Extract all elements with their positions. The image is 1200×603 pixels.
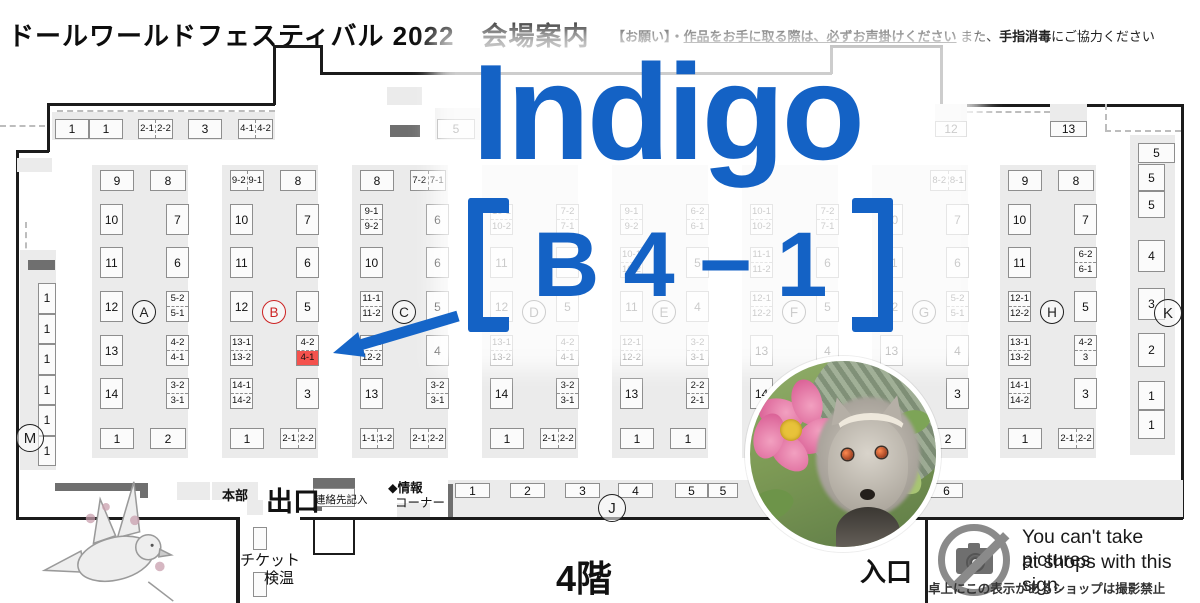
booth: 2-12-2 bbox=[410, 428, 446, 449]
booth: 4-23 bbox=[1074, 335, 1097, 366]
booth-label: 4-2 bbox=[171, 338, 185, 348]
booth: 12-112-2 bbox=[360, 335, 383, 366]
booth: 4 bbox=[618, 483, 653, 498]
booth: 7 bbox=[166, 204, 189, 235]
booth-label: 2 bbox=[165, 433, 172, 445]
booth-label: 7 bbox=[1082, 214, 1089, 226]
booth-label: 5 bbox=[720, 485, 727, 497]
temperature-check-label: 検温 bbox=[264, 567, 294, 588]
booth: 14 bbox=[490, 378, 513, 409]
booth-label: 3 bbox=[579, 485, 586, 497]
booth: 3-23-1 bbox=[556, 378, 579, 409]
wall bbox=[300, 517, 1183, 520]
booth-label: 3-2 bbox=[431, 381, 445, 391]
booth: 12 bbox=[100, 291, 123, 322]
booth: 1-11-2 bbox=[360, 428, 394, 449]
booth: 9-19-2 bbox=[360, 204, 383, 235]
wall bbox=[47, 103, 275, 106]
booth-label: 6 bbox=[943, 485, 950, 497]
wolf-eye bbox=[876, 447, 887, 458]
booth-label: 2-1 bbox=[691, 396, 705, 406]
booth: 9 bbox=[1008, 170, 1042, 191]
partition bbox=[448, 484, 453, 517]
partition bbox=[322, 478, 355, 488]
dashed-line bbox=[1105, 130, 1181, 132]
booth-label: 9 bbox=[114, 175, 121, 187]
booth-label: 3 bbox=[1083, 353, 1088, 363]
block-letter-C: C bbox=[392, 300, 416, 324]
booth-label: 5 bbox=[1148, 172, 1155, 184]
booth-label: 10 bbox=[365, 257, 378, 269]
wall bbox=[16, 150, 19, 519]
booth-label: 2-1 bbox=[412, 434, 426, 444]
booth-label: 5 bbox=[304, 301, 311, 313]
notice-segment: また、 bbox=[957, 29, 1000, 44]
booth-label: 13-1 bbox=[1010, 338, 1029, 348]
booth-label: 1-1 bbox=[362, 434, 376, 444]
booth: 6-26-1 bbox=[1074, 247, 1097, 278]
booth: 2-12-2 bbox=[138, 119, 173, 139]
booth: 13 bbox=[360, 378, 383, 409]
booth-label: 11 bbox=[105, 257, 117, 269]
booth-label: 12-1 bbox=[1010, 294, 1029, 304]
block-letter-label: J bbox=[608, 500, 616, 517]
wall bbox=[273, 45, 322, 48]
booth-label: 7 bbox=[304, 214, 311, 226]
booth: 1 bbox=[455, 483, 490, 498]
booth-label: 1 bbox=[44, 353, 51, 365]
booth: 5 bbox=[675, 483, 708, 498]
booth-label: 1 bbox=[244, 433, 251, 445]
wolf-eye bbox=[842, 449, 853, 460]
booth-label: 11-2 bbox=[362, 309, 380, 319]
booth: 13 bbox=[100, 335, 123, 366]
booth-label: 13 bbox=[105, 345, 118, 357]
booth: 4 bbox=[1138, 240, 1165, 272]
booth-label: 2-2 bbox=[1078, 434, 1092, 444]
doll-photo bbox=[745, 356, 941, 552]
wolf-body bbox=[836, 507, 900, 552]
booth-label: 4 bbox=[1148, 250, 1155, 262]
dashed-line bbox=[967, 111, 1050, 113]
booth-label: 10 bbox=[105, 214, 118, 226]
block-letter-label: B bbox=[269, 305, 278, 320]
booth-label: 9 bbox=[1022, 175, 1029, 187]
no-photo-caption: 卓上にこの表示があるショップは撮影禁止 bbox=[928, 578, 1165, 597]
booth-label: 5 bbox=[434, 301, 441, 313]
booth-label: 1 bbox=[69, 123, 76, 135]
booth: 3 bbox=[1074, 378, 1097, 409]
booth: 13-113-2 bbox=[230, 335, 253, 366]
booth: 11 bbox=[1008, 247, 1031, 278]
booth: 3 bbox=[188, 119, 222, 139]
booth-label: 5 bbox=[1148, 199, 1155, 211]
leaf bbox=[745, 482, 798, 530]
booth-label: 4 bbox=[632, 485, 639, 497]
booth-label: 1 bbox=[103, 123, 110, 135]
booth-label: 1 bbox=[44, 445, 51, 457]
booth-label: 9-1 bbox=[248, 176, 262, 186]
booth: 5 bbox=[1074, 291, 1097, 322]
booth-label: 3-1 bbox=[171, 396, 185, 406]
wall-booth-strip bbox=[1050, 104, 1087, 121]
floor-label: 4階 bbox=[556, 550, 612, 602]
booth-label: 10 bbox=[1013, 214, 1026, 226]
booth: 13 bbox=[620, 378, 643, 409]
booth: 1 bbox=[38, 314, 56, 345]
booth: 1 bbox=[100, 428, 134, 449]
booth-label: 3-2 bbox=[171, 381, 185, 391]
side-booth bbox=[17, 158, 52, 172]
booth: 8 bbox=[280, 170, 316, 191]
booth-label: 14-2 bbox=[1010, 396, 1029, 406]
booth-label: 13-2 bbox=[492, 353, 511, 363]
booth: 5 bbox=[1138, 143, 1175, 163]
wall bbox=[313, 517, 315, 555]
block-letter-label: C bbox=[399, 305, 409, 320]
booth-label: 2-2 bbox=[300, 434, 314, 444]
hq-label: 本部 bbox=[222, 485, 248, 504]
booth: 3 bbox=[296, 378, 319, 409]
booth: 6 bbox=[296, 247, 319, 278]
booth: 3 bbox=[946, 378, 969, 409]
booth-label: 1 bbox=[634, 433, 641, 445]
booth: 5 bbox=[708, 483, 738, 498]
booth: 8 bbox=[150, 170, 186, 191]
info-corner-label2: コーナー bbox=[395, 492, 445, 511]
booth: 8 bbox=[1058, 170, 1094, 191]
wall bbox=[16, 150, 49, 153]
booth-label: 3-1 bbox=[691, 353, 705, 363]
block-letter-K: K bbox=[1154, 299, 1182, 327]
booth-label: 2-2 bbox=[157, 124, 171, 134]
booth-label: 6-1 bbox=[1079, 265, 1093, 275]
booth: 13 bbox=[1050, 121, 1087, 137]
booth-label: 8 bbox=[295, 175, 302, 187]
booth: 2 bbox=[510, 483, 545, 498]
booth-label: 1 bbox=[114, 433, 121, 445]
booth-label: 12 bbox=[105, 301, 118, 313]
block-letter-H: H bbox=[1040, 300, 1064, 324]
shop-name-overlay: Indigo bbox=[472, 44, 862, 180]
booth-label: 2-1 bbox=[1060, 434, 1074, 444]
booth-label: 14-1 bbox=[232, 381, 251, 391]
booth: 8 bbox=[360, 170, 394, 191]
booth-label: 4-2 bbox=[257, 124, 271, 134]
booth-label: 2 bbox=[945, 433, 952, 445]
booth-label: 13 bbox=[1062, 123, 1075, 135]
booth-label: 4-1 bbox=[240, 124, 254, 134]
booth-label: 10 bbox=[235, 214, 248, 226]
dashed-line bbox=[0, 125, 45, 127]
booth-label: 11-1 bbox=[362, 294, 380, 304]
booth: 10 bbox=[230, 204, 253, 235]
booth: 14-114-2 bbox=[1008, 378, 1031, 409]
booth-label: 3 bbox=[304, 388, 311, 400]
booth-label: 7-1 bbox=[430, 176, 444, 186]
booth-label: 5 bbox=[1082, 301, 1089, 313]
booth: 11-111-2 bbox=[360, 291, 383, 322]
booth-label: 9-2 bbox=[365, 222, 379, 232]
booth-label: 1 bbox=[504, 433, 511, 445]
wall bbox=[236, 517, 240, 603]
right-bracket-glyph bbox=[852, 198, 893, 332]
booth-label: 3 bbox=[1082, 388, 1089, 400]
booth-label: 8 bbox=[165, 175, 172, 187]
booth-label: 14 bbox=[105, 388, 118, 400]
contact-entry-label: 連絡先記入 bbox=[315, 492, 368, 507]
booth-label: 13-2 bbox=[232, 353, 251, 363]
booth-label: 12-2 bbox=[622, 353, 641, 363]
booth: 1 bbox=[38, 375, 56, 406]
side-booth bbox=[387, 87, 422, 105]
booth: 4-14-2 bbox=[238, 119, 273, 139]
booth-label: 7-2 bbox=[412, 176, 426, 186]
booth-label: 3-2 bbox=[561, 381, 575, 391]
ticket-desk bbox=[253, 527, 267, 550]
booth: 6 bbox=[426, 247, 449, 278]
booth: 14 bbox=[100, 378, 123, 409]
booth: 4-24-1 bbox=[166, 335, 189, 366]
booth-label: 1 bbox=[1148, 390, 1155, 402]
booth: 2 bbox=[150, 428, 186, 449]
wall bbox=[313, 553, 355, 555]
booth-label: 3-1 bbox=[431, 396, 445, 406]
booth: 11 bbox=[100, 247, 123, 278]
booth-label: 14-1 bbox=[1010, 381, 1029, 391]
dove-illustration bbox=[40, 478, 195, 603]
booth: 1 bbox=[89, 119, 123, 139]
booth: 5 bbox=[1138, 164, 1165, 191]
overlay-char: 1 bbox=[776, 219, 827, 311]
booth-label: 13 bbox=[365, 388, 378, 400]
booth: 2-12-2 bbox=[540, 428, 576, 449]
wall bbox=[273, 45, 276, 105]
booth-label: 2 bbox=[1148, 344, 1155, 356]
booth: 5 bbox=[426, 291, 449, 322]
booth: 1 bbox=[490, 428, 524, 449]
booth-label: 2-2 bbox=[430, 434, 444, 444]
booth: 3 bbox=[565, 483, 600, 498]
booth-label: 2-1 bbox=[140, 124, 154, 134]
booth-label: 4 bbox=[434, 345, 441, 357]
booth: 5-25-1 bbox=[166, 291, 189, 322]
booth-label: 2-1 bbox=[542, 434, 556, 444]
venue-map: ドールワールドフェスティバル 2022 会場案内 【お願い】・作品をお手に取る際… bbox=[0, 0, 1200, 603]
booth: 1 bbox=[1008, 428, 1042, 449]
booth-label: 14-2 bbox=[232, 396, 251, 406]
booth: 5 bbox=[296, 291, 319, 322]
block-letter-M: M bbox=[16, 424, 44, 452]
overlay-char: 4 bbox=[623, 219, 674, 311]
booth: 5 bbox=[1138, 191, 1165, 218]
booth-label: 6 bbox=[304, 257, 311, 269]
entrance-label: 入口 bbox=[860, 552, 912, 589]
booth-label: 1 bbox=[1022, 433, 1029, 445]
booth: 12 bbox=[230, 291, 253, 322]
booth: 7-27-1 bbox=[410, 170, 446, 191]
block-letter-label: H bbox=[1047, 305, 1057, 320]
overlay-char: B bbox=[533, 219, 599, 311]
booth: 3-23-1 bbox=[166, 378, 189, 409]
booth-label: 1 bbox=[685, 433, 692, 445]
booth-label: 2-2 bbox=[560, 434, 574, 444]
booth: 12-112-2 bbox=[1008, 291, 1031, 322]
booth-label: 7 bbox=[174, 214, 181, 226]
booth: 4 bbox=[426, 335, 449, 366]
booth: 4-24-1 bbox=[296, 335, 319, 366]
booth-label: 5 bbox=[688, 485, 695, 497]
booth-label: 4-1 bbox=[301, 353, 315, 363]
booth-label: 6 bbox=[174, 257, 181, 269]
booth: 6 bbox=[166, 247, 189, 278]
booth-label: 4-1 bbox=[561, 353, 575, 363]
block-letter-B: B bbox=[262, 300, 286, 324]
booth-label: 13-2 bbox=[1010, 353, 1029, 363]
booth-label: 2 bbox=[524, 485, 531, 497]
booth-label: 4-2 bbox=[301, 338, 315, 348]
block-letter-A: A bbox=[132, 300, 156, 324]
notice-segment: 手指消毒 bbox=[999, 29, 1051, 44]
hq-booth bbox=[247, 500, 263, 515]
booth-label: 8 bbox=[374, 175, 381, 187]
booth: 7 bbox=[1074, 204, 1097, 235]
booth: 3-23-1 bbox=[426, 378, 449, 409]
overlay-char: − bbox=[699, 219, 753, 311]
booth-label: 1 bbox=[469, 485, 476, 497]
booth-label: 1 bbox=[44, 323, 51, 335]
booth-label: 6-2 bbox=[1079, 250, 1093, 260]
booth-label: 3-1 bbox=[561, 396, 575, 406]
booth-label: 1-2 bbox=[378, 434, 392, 444]
block-letter-J: J bbox=[598, 494, 626, 522]
booth: 1 bbox=[620, 428, 654, 449]
booth-label: 12 bbox=[235, 301, 248, 313]
booth: 10 bbox=[1008, 204, 1031, 235]
booth: 9-29-1 bbox=[230, 170, 264, 191]
wall bbox=[353, 517, 355, 555]
booth: 10 bbox=[360, 247, 383, 278]
wall bbox=[320, 45, 323, 74]
booth: 2 bbox=[1138, 333, 1165, 367]
booth-label: 11 bbox=[235, 257, 247, 269]
booth: 1 bbox=[1138, 381, 1165, 410]
booth: 10 bbox=[100, 204, 123, 235]
notice-segment: にご協力ください bbox=[1051, 29, 1155, 44]
booth-label: 13 bbox=[625, 388, 638, 400]
booth: 1 bbox=[55, 119, 89, 139]
booth: 11 bbox=[230, 247, 253, 278]
booth: 1 bbox=[38, 344, 56, 375]
booth-label: 2-1 bbox=[282, 434, 296, 444]
booth-label: 1 bbox=[44, 292, 51, 304]
booth-label: 3 bbox=[202, 123, 209, 135]
booth-label: 9-2 bbox=[232, 176, 246, 186]
exit-label: 出口 bbox=[266, 480, 320, 519]
booth-label: 8 bbox=[1073, 175, 1080, 187]
booth-label: 1 bbox=[44, 384, 51, 396]
booth-label: 1 bbox=[1148, 419, 1155, 431]
booth: 13-113-2 bbox=[1008, 335, 1031, 366]
booth: 2-12-2 bbox=[1058, 428, 1094, 449]
booth-label: 3 bbox=[954, 388, 961, 400]
booth-label: 11 bbox=[1013, 257, 1025, 269]
booth-label: 9-1 bbox=[365, 207, 379, 217]
booth-label: 12-1 bbox=[362, 338, 381, 348]
booth-label: 14 bbox=[495, 388, 508, 400]
block-letter-label: A bbox=[139, 305, 148, 320]
booth: 9 bbox=[100, 170, 134, 191]
partition bbox=[28, 260, 55, 270]
booth: 7 bbox=[296, 204, 319, 235]
booth: 6 bbox=[426, 204, 449, 235]
booth-label: 12-2 bbox=[1010, 309, 1029, 319]
booth: 2-22-1 bbox=[686, 378, 709, 409]
booth: 2-12-2 bbox=[280, 428, 316, 449]
booth-label: 5-2 bbox=[171, 294, 185, 304]
booth-label: 5-1 bbox=[171, 309, 185, 319]
booth: 1 bbox=[38, 283, 56, 314]
booth: 1 bbox=[670, 428, 706, 449]
booth-label: 6 bbox=[434, 214, 441, 226]
booth-label: 1 bbox=[44, 414, 51, 426]
booth-label: 12-2 bbox=[362, 353, 381, 363]
block-letter-label: K bbox=[1163, 305, 1173, 322]
dashed-line bbox=[1105, 104, 1107, 130]
wolf-nose bbox=[860, 489, 875, 500]
booth-number-overlay: B 4 − 1 bbox=[468, 206, 893, 324]
booth-label: 6 bbox=[434, 257, 441, 269]
block-letter-label: M bbox=[24, 430, 37, 447]
booth-label: 5 bbox=[1153, 147, 1160, 159]
booth-label: 4-2 bbox=[1079, 338, 1093, 348]
left-bracket-glyph bbox=[468, 198, 509, 332]
white-headband bbox=[834, 413, 908, 454]
partition bbox=[390, 125, 420, 137]
wall bbox=[47, 103, 50, 152]
booth: 1 bbox=[230, 428, 264, 449]
booth: 1 bbox=[1138, 410, 1165, 439]
booth-label: 4-1 bbox=[171, 353, 185, 363]
booth-label: 2-2 bbox=[691, 381, 705, 391]
booth: 14-114-2 bbox=[230, 378, 253, 409]
booth-label: 13-1 bbox=[232, 338, 251, 348]
